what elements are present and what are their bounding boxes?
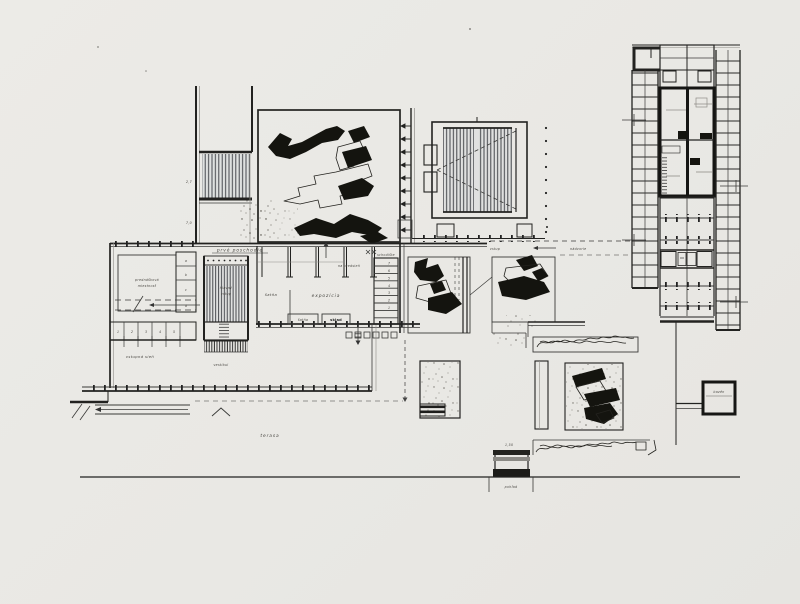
side-booth bbox=[424, 145, 437, 165]
lecture-room bbox=[118, 255, 176, 311]
terrace-label: terasa bbox=[260, 433, 279, 439]
svg-text:4: 4 bbox=[159, 330, 161, 334]
svg-text:3: 3 bbox=[145, 330, 147, 334]
terrace: terasa 1,50 pohľad bbox=[70, 325, 740, 492]
north-chevron bbox=[212, 408, 230, 416]
svg-text:2: 2 bbox=[388, 299, 390, 303]
svg-text:5: 5 bbox=[173, 330, 175, 334]
entry-note: vstup bbox=[490, 247, 500, 251]
vestibule-label: vestibul bbox=[214, 363, 229, 367]
pool-label: bazén bbox=[713, 390, 724, 394]
svg-text:vstup: vstup bbox=[221, 292, 231, 296]
ramp-arrow bbox=[95, 405, 190, 414]
lecture-room-label: prednášková bbox=[134, 278, 159, 282]
balcony-ladder-right bbox=[716, 50, 748, 330]
svg-text:6: 6 bbox=[388, 269, 390, 273]
svg-text:1: 1 bbox=[388, 306, 390, 310]
plan-sheet: 2,7 7,0 bbox=[0, 0, 800, 604]
stair-hatch bbox=[698, 71, 711, 82]
mezzanine-note: na predsieň bbox=[338, 264, 360, 268]
svg-text:miestnosť: miestnosť bbox=[138, 284, 157, 288]
ramp-label: hlavný bbox=[220, 286, 232, 290]
corner-cell bbox=[634, 48, 660, 70]
pier-wall bbox=[535, 361, 548, 429]
garden-room bbox=[420, 361, 460, 418]
locker-row bbox=[346, 332, 397, 338]
cabin-row bbox=[110, 322, 196, 340]
panel-right-shapes bbox=[498, 255, 550, 300]
annotations: vstup nádvorie bbox=[398, 220, 630, 255]
svg-text:b: b bbox=[185, 273, 187, 277]
left-wing-label: vstupná sieň bbox=[126, 355, 155, 359]
svg-text:2: 2 bbox=[131, 330, 133, 334]
column-brackets bbox=[401, 124, 411, 232]
svg-text:šatňa: šatňa bbox=[298, 318, 308, 322]
level-mark-b: 7,0 bbox=[186, 221, 192, 225]
floor-plan-drawing: 2,7 7,0 bbox=[0, 0, 800, 604]
view-note: pohľad bbox=[504, 485, 518, 489]
tower-wing bbox=[622, 45, 748, 445]
elevator-hatch bbox=[697, 252, 712, 267]
svg-text:5: 5 bbox=[388, 276, 390, 280]
svg-text:3: 3 bbox=[388, 291, 390, 295]
svg-text:a: a bbox=[185, 259, 187, 263]
courtyard bbox=[533, 336, 656, 455]
exhibition-room: šatňa expozícia na predsieň šatňa sklad … bbox=[256, 242, 420, 345]
level-mark-a: 2,7 bbox=[186, 180, 192, 184]
bench-dim: 1,50 bbox=[505, 443, 513, 447]
stair-hatch bbox=[663, 71, 676, 82]
column-dots bbox=[545, 127, 547, 233]
svg-text:1: 1 bbox=[117, 330, 119, 334]
exhibition-label: expozícia bbox=[312, 292, 341, 299]
svg-text:d: d bbox=[185, 304, 188, 308]
panel-left-shapes bbox=[414, 258, 462, 314]
svg-text:7: 7 bbox=[388, 262, 390, 266]
court-note: nádvorie bbox=[570, 247, 586, 251]
floor-caption: prvé poschodie bbox=[216, 247, 263, 254]
sculpture-panels bbox=[408, 255, 585, 348]
elevator-hatch bbox=[661, 252, 676, 267]
cloakroom-label: šatňa bbox=[265, 293, 278, 297]
side-booth bbox=[424, 172, 437, 192]
pool-room: bazén bbox=[676, 382, 735, 414]
entrance-ramp-block: hlavný vstup bbox=[204, 256, 248, 352]
stair-label: schodište bbox=[377, 253, 395, 257]
svg-text:4: 4 bbox=[388, 284, 390, 288]
svg-text:c: c bbox=[185, 288, 187, 292]
planting-band-bottom bbox=[533, 440, 656, 455]
svg-text:sklad: sklad bbox=[330, 318, 342, 322]
bench: 1,50 bbox=[493, 443, 530, 477]
film-specks bbox=[97, 28, 471, 72]
auditorium bbox=[424, 117, 547, 233]
planting-band-top bbox=[533, 337, 638, 352]
staircase: 7 6 5 4 3 2 1 schodište bbox=[374, 253, 398, 324]
